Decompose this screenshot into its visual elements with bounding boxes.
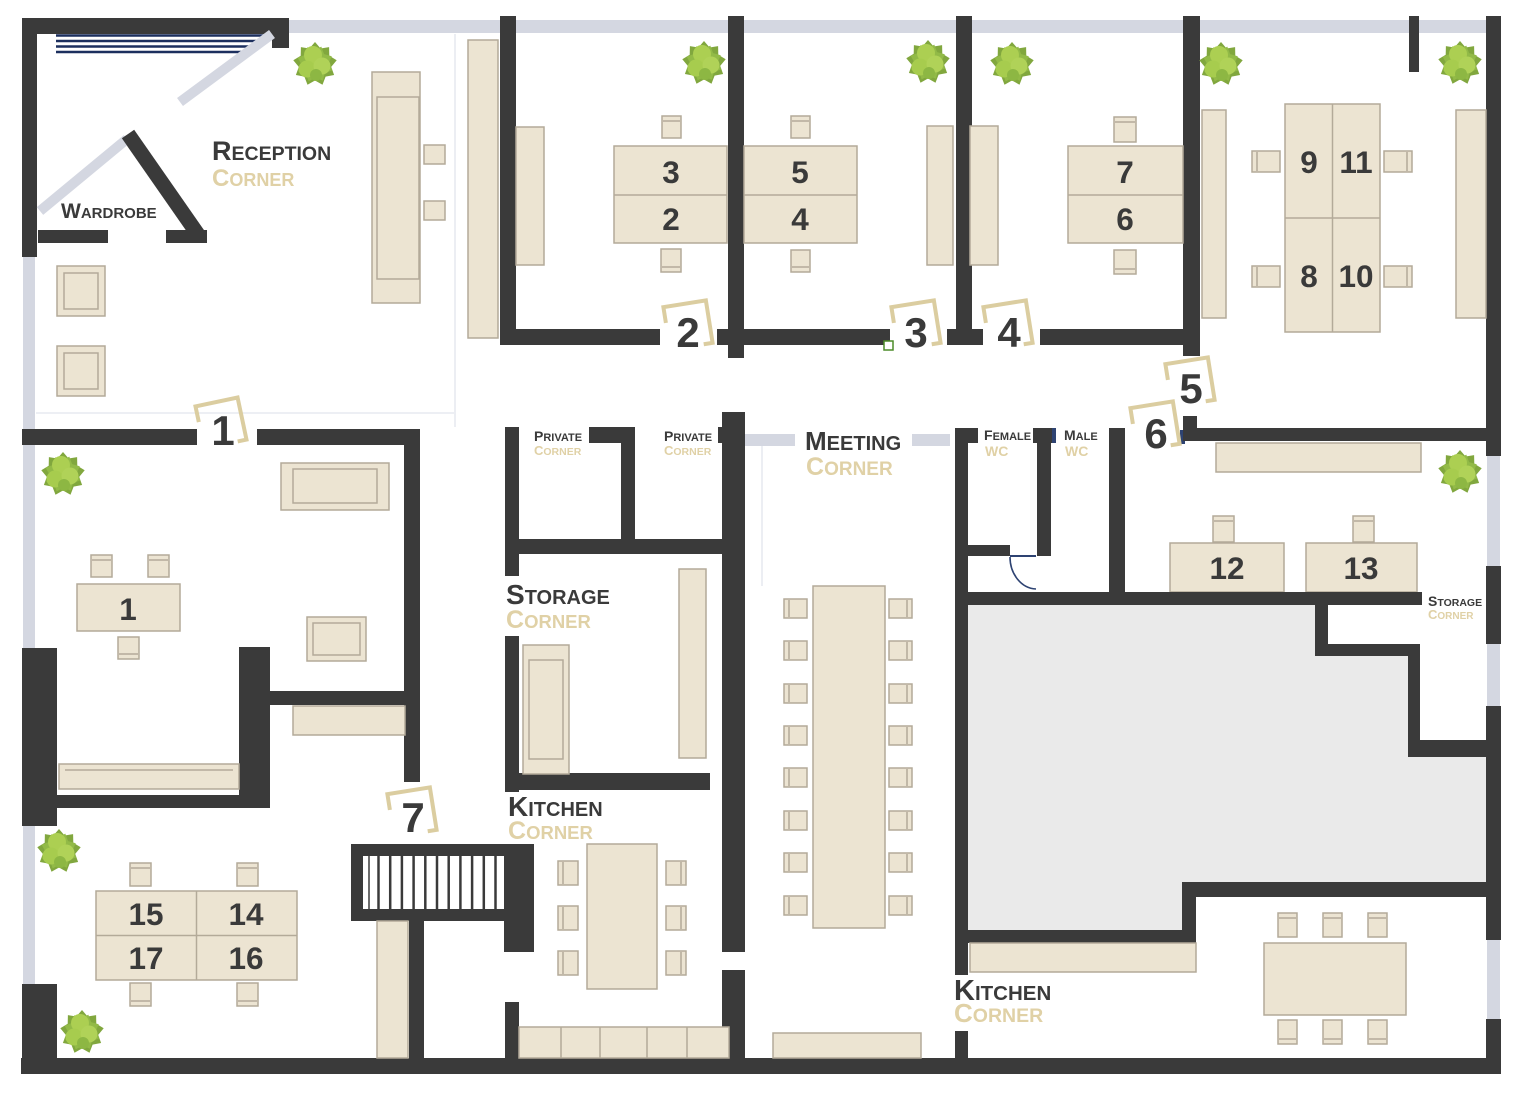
svg-text:2: 2 [676, 309, 699, 356]
svg-text:CORNER: CORNER [508, 817, 593, 845]
svg-text:5: 5 [791, 154, 809, 190]
svg-text:8: 8 [1300, 258, 1318, 294]
svg-text:17: 17 [128, 940, 163, 976]
svg-text:4: 4 [791, 201, 809, 237]
svg-text:1: 1 [211, 407, 234, 454]
svg-text:11: 11 [1339, 144, 1372, 180]
svg-text:3: 3 [904, 309, 927, 356]
svg-text:3: 3 [662, 154, 680, 190]
svg-text:6: 6 [1116, 201, 1134, 237]
svg-text:10: 10 [1338, 258, 1373, 294]
svg-text:13: 13 [1343, 550, 1378, 586]
svg-text:14: 14 [228, 896, 264, 932]
svg-text:5: 5 [1179, 365, 1202, 412]
svg-text:CORNER: CORNER [534, 443, 582, 458]
svg-text:CORNER: CORNER [664, 443, 712, 458]
svg-text:6: 6 [1144, 410, 1167, 457]
svg-text:2: 2 [662, 201, 680, 237]
svg-text:7: 7 [1116, 154, 1134, 190]
svg-text:1: 1 [119, 591, 137, 627]
svg-text:4: 4 [997, 309, 1021, 356]
svg-text:7: 7 [401, 794, 424, 841]
svg-text:WC: WC [985, 443, 1008, 459]
svg-text:9: 9 [1300, 144, 1318, 180]
svg-text:16: 16 [228, 940, 263, 976]
svg-text:WC: WC [1065, 443, 1088, 459]
svg-text:CORNER: CORNER [212, 165, 294, 192]
svg-text:12: 12 [1209, 550, 1244, 586]
svg-text:15: 15 [128, 896, 163, 932]
svg-text:CORNER: CORNER [506, 606, 591, 634]
